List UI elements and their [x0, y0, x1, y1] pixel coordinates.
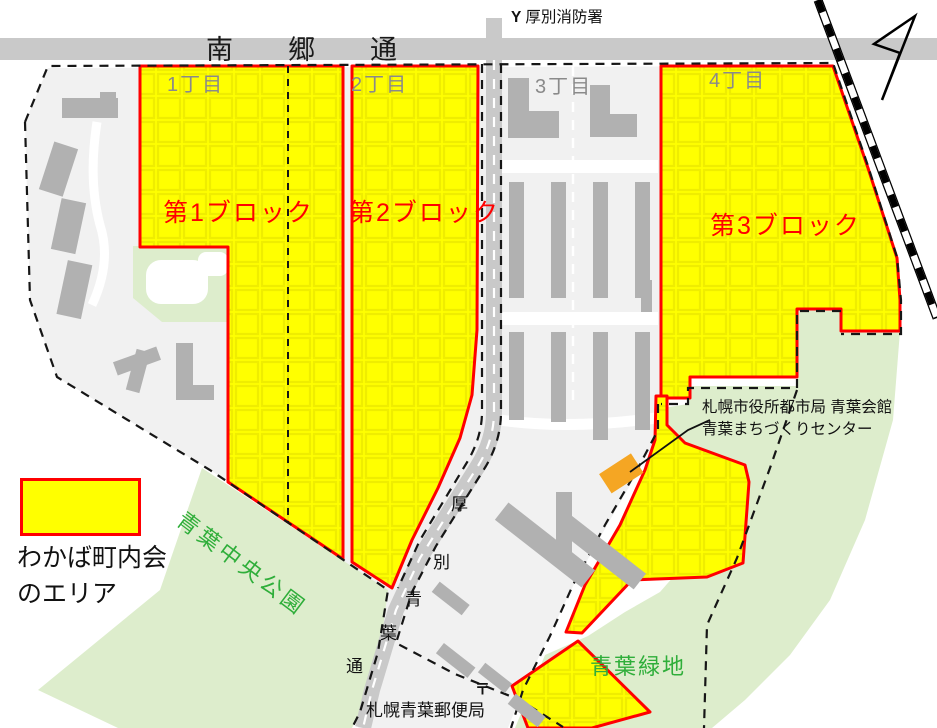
block2-label: 第2ブロック [349, 193, 500, 229]
district-label-2chome: 2丁目 [351, 68, 408, 97]
road-char-atsu: 厚 [451, 490, 468, 515]
road-char-betsu: 別 [433, 548, 450, 573]
district-label-1chome: 1丁目 [167, 68, 224, 97]
fire-station-label: Y厚別消防署 [511, 5, 603, 27]
nango-road-label: 南郷通 [206, 28, 452, 67]
map-canvas [0, 0, 937, 728]
fire-station-name: 厚別消防署 [525, 9, 603, 26]
block3-label: 第3ブロック [710, 206, 861, 242]
block1-label: 第1ブロック [163, 193, 314, 229]
road-char-dori: 通 [346, 652, 363, 677]
road-char-ao: 青 [405, 585, 422, 610]
green-space-label: 青葉緑地 [590, 649, 686, 681]
road-char-ba: 葉 [380, 619, 397, 644]
community-center-annotation: 札幌市役所都市局 青葉会館 青葉まちづくりセンター [702, 397, 892, 442]
legend-line2: のエリア [17, 576, 237, 612]
annotation-line2: 青葉まちづくりセンター [702, 419, 892, 441]
annotation-line1: 札幌市役所都市局 青葉会館 [702, 397, 892, 419]
legend-swatch [20, 478, 141, 536]
nango-road [0, 38, 937, 60]
district-label-3chome: 3丁目 [535, 70, 592, 99]
district-label-4chome: 4丁目 [709, 64, 766, 93]
fire-station-icon: Y [511, 9, 521, 26]
post-office-label: 札幌青葉郵便局 [366, 696, 485, 721]
wakaba-area-map: Y厚別消防署 南郷通 1丁目 2丁目 3丁目 4丁目 第1ブロック 第2ブロック… [0, 0, 937, 728]
